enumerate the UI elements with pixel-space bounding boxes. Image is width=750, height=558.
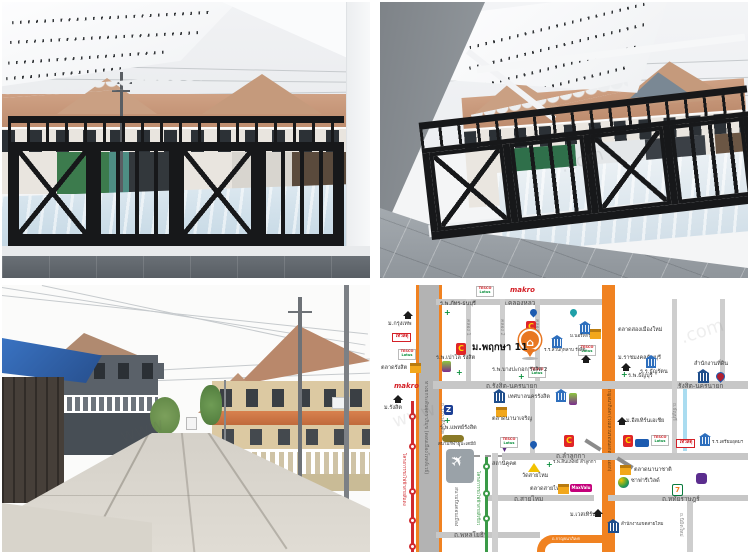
- red-line-station: [409, 543, 416, 550]
- university-icon: [392, 395, 404, 403]
- road-label-kanchanaphisek-short: ถ.กาญจนาภิเษก: [552, 535, 580, 542]
- balcony-floor: [2, 256, 370, 278]
- seven-eleven-logo: 7: [672, 484, 683, 496]
- railing-bar-panel: [97, 147, 172, 238]
- property-photo-collage: ทางยกระดับอุตราภิมุข (ดอนเมืองโทลล์เวย์)…: [0, 0, 750, 558]
- school-icon: [700, 437, 710, 446]
- hospital-icon: +: [456, 369, 463, 377]
- makro-logo: makro: [510, 287, 535, 294]
- khu-khot-label: สถานีคูคต: [492, 461, 516, 467]
- hospital-icon: +: [621, 371, 628, 379]
- road-label-klong-luang: ถ.คลองหลวง: [502, 298, 539, 308]
- airport-label: สนามบินดอนเมือง: [452, 487, 460, 526]
- balcony-side-wall: [346, 2, 370, 278]
- tree: [200, 385, 222, 425]
- poi-thanyarat: ร.ร.ธัญรัตน: [640, 369, 668, 375]
- school-icon: [556, 393, 566, 402]
- green-line: [485, 457, 488, 552]
- balcony-ledge: [2, 246, 370, 256]
- stadium-icon: [442, 435, 464, 442]
- market-icon: [410, 363, 421, 373]
- government-icon: [698, 373, 709, 383]
- maxvalu-logo: MaxValu: [570, 484, 592, 492]
- road-nimit-mai: [687, 501, 693, 552]
- green-line-label: โครงการรถไฟฟ้าสายสีเขียว: [475, 471, 482, 525]
- railing-x-panel: [429, 144, 511, 231]
- zeer-logo: Z: [444, 405, 453, 415]
- hospital-icon: +: [546, 461, 553, 469]
- railing-x-panel: [180, 147, 255, 238]
- poi-talad-rangsit: ตลาดรังสิต: [381, 365, 407, 371]
- bigc-logo: C: [564, 435, 574, 447]
- tree: [150, 397, 180, 435]
- university-icon: [580, 355, 592, 363]
- road-label-phahonyothin: ถ.พหลโยธิน: [454, 530, 488, 540]
- project-label: ม.พฤกษา 11: [472, 343, 528, 353]
- green-line-station: [483, 515, 490, 522]
- road-label-nimit-mai: ถ.นิมิตใหม่: [677, 513, 685, 537]
- poi-paet-rangsit: ร.พ.แพทย์รังสิต: [440, 425, 477, 431]
- tesco-lotus-logo: TESCOLotus: [500, 437, 518, 448]
- road-thanyaburi: [672, 299, 677, 453]
- market-icon: [558, 484, 569, 494]
- poi-eastern-asia-u: ม.อีสเทิร์นเอเชีย: [626, 418, 664, 424]
- tesco-lotus-logo: TESCOLotus: [398, 349, 416, 360]
- red-line: [411, 401, 414, 552]
- poi-talad-nana-charoen: ตลาดนานาเจริญ: [492, 416, 532, 422]
- government-icon: [608, 523, 619, 533]
- road-label-sai-mai: ถ.สายไหม: [514, 494, 543, 504]
- tesco-lotus-logo: TESCOLotus: [476, 286, 494, 297]
- poi-city-hall: เทศบาลนครรังสิต: [508, 394, 550, 400]
- tesco-lotus-logo: TESCOLotus: [651, 435, 669, 446]
- railing-x-panel: [15, 147, 90, 238]
- hospital-icon: +: [518, 373, 525, 381]
- poi-western-u: ม.เวสเทิร์น: [570, 512, 596, 518]
- road-label-thanyaburi: ถ.ธัญบุรี: [670, 403, 678, 421]
- green-line-station: [483, 490, 490, 497]
- poi-rangsit-u: ม.รังสิต: [384, 405, 402, 411]
- photo-balcony-corner[interactable]: [380, 2, 748, 278]
- poi-talad-muang-mai: ตลาดสองเมืองใหม่: [618, 327, 662, 333]
- utility-pole: [224, 380, 226, 442]
- right-house-roof: [238, 325, 370, 385]
- red-line-station: [409, 443, 416, 450]
- red-line-station: [409, 488, 416, 495]
- poi-wat-sai-mai: วัดสายไหม: [522, 473, 548, 479]
- poi-land-office: สำนักงานที่ดิน: [694, 361, 728, 367]
- market-icon: [590, 329, 601, 339]
- photo-street[interactable]: [2, 285, 370, 552]
- school-icon: [552, 339, 562, 348]
- safari-world-icon: [618, 477, 629, 488]
- poi-paolo-hospital: ร.พ.เปาโล รังสิต: [436, 355, 475, 361]
- poi-bangkok-u: ม.กรุงเทพ: [388, 321, 411, 327]
- future-park-logo: [442, 361, 451, 372]
- school-icon: [646, 359, 656, 368]
- railing-x-panel: [590, 126, 672, 213]
- photo-balcony-front[interactable]: [2, 2, 370, 278]
- penny-logo: [635, 439, 649, 447]
- school-icon: [580, 325, 590, 334]
- road-minor-topright: [720, 299, 725, 381]
- department-store-logo: [696, 473, 707, 484]
- future-park-logo: [569, 393, 577, 405]
- government-icon: [494, 393, 505, 403]
- ramp-dash: [584, 439, 601, 452]
- poi-phat-hospital: ร.พ.ภัทร-ธนบุรี: [440, 301, 476, 307]
- poi-sinphaet: ร.พ.สินแพทย์ ลำลูกกา: [553, 461, 583, 466]
- road-klong1: [466, 299, 471, 381]
- hospital-icon: +: [444, 309, 451, 317]
- van: [186, 417, 197, 430]
- poi-safari-world: ซาฟารีเวิลด์: [631, 478, 660, 484]
- bigc-logo: C: [623, 435, 633, 447]
- bigc-logo: C: [456, 343, 466, 355]
- water-icon: [569, 308, 579, 318]
- red-line-label: โครงการรถไฟฟ้าสายสีแดง: [401, 453, 408, 506]
- red-line-station: [409, 517, 416, 524]
- road-phahon-v: [492, 453, 498, 552]
- map-location[interactable]: ทางยกระดับอุตราภิมุข (ดอนเมืองโทลล์เวย์)…: [380, 285, 748, 552]
- makro-logo: makro: [394, 383, 419, 390]
- road-label-tollway: ทางยกระดับอุตราภิมุข (ดอนเมืองโทลล์เวย์): [422, 381, 430, 474]
- road-label-klong1: คลอง 1: [464, 319, 472, 336]
- road-lam-lukka: [502, 453, 748, 460]
- market-icon: [620, 465, 631, 475]
- university-icon: [402, 311, 414, 319]
- green-line-station: [483, 463, 490, 470]
- poi-talad-nana: ตลาดนานาชาติ: [634, 467, 672, 473]
- thaiwatsadu-logo: ไทวัสดุ: [676, 439, 695, 448]
- dark-fence: [2, 377, 64, 503]
- railing-bar-panel: [670, 117, 748, 204]
- railing-bar-panel: [509, 135, 591, 222]
- poi-saimai-district: สำนักงานเขตสายไหม: [621, 523, 655, 528]
- poi-suan-kularb: ร.ร.สวนกุหลาบ รังสิต: [544, 349, 578, 354]
- temple-icon-gold: [528, 463, 540, 472]
- poi-triam-udom: ร.ร.เตรียมอุดมฯ: [712, 441, 743, 446]
- hospital-icon: +: [444, 417, 451, 425]
- road-label-klong2: คลอง 2: [498, 319, 506, 336]
- balcony-railing: [8, 116, 344, 246]
- railing-bar-panel: [262, 147, 337, 238]
- thaiwatsadu-logo: ไทวัสดุ: [392, 333, 411, 342]
- poi-stadium: สนามกีฬาธูปะเตมีย์: [438, 443, 476, 448]
- red-line-station: [409, 413, 416, 420]
- project-pin-base: [522, 357, 538, 360]
